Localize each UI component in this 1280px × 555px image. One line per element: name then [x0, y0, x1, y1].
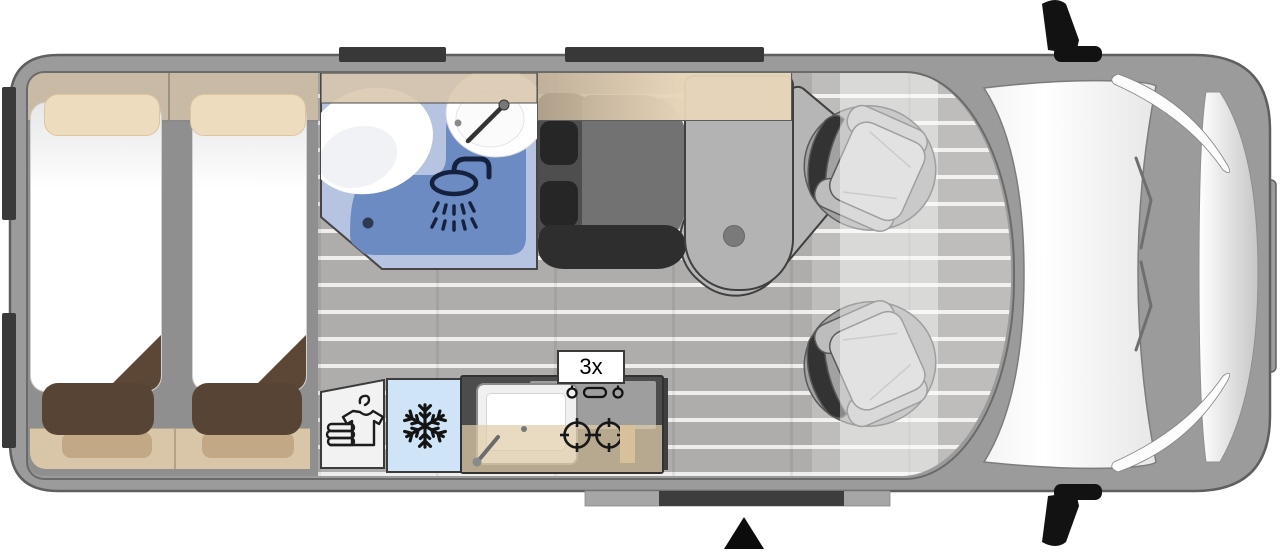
shelf-divider [168, 71, 170, 120]
entrance-triangle-icon [724, 517, 764, 549]
bathroom-shelf [321, 73, 537, 103]
wardrobe [320, 379, 386, 469]
foot-cushion-left [42, 383, 154, 435]
side-mirror-bottom-icon [1042, 484, 1102, 546]
roof-opening-highlight [840, 71, 938, 476]
burner-count-label: 3x [557, 350, 625, 384]
table-pivot [723, 225, 745, 247]
headrest [540, 121, 578, 165]
faucet-icon [473, 426, 528, 467]
window-marker-left [339, 47, 446, 62]
burner-count-text: 3x [579, 354, 602, 380]
side-mirror-top-icon [1042, 0, 1102, 62]
twin-bed-left [30, 102, 162, 392]
drain-icon [363, 218, 374, 229]
kitchen-end-trim [620, 425, 635, 463]
sliding-door [659, 491, 844, 506]
headrest [540, 181, 578, 227]
dinette-overhead-shelf [537, 71, 792, 121]
snowflake-icon [396, 397, 454, 455]
rear-door-marker-bottom [2, 313, 16, 448]
bed-pillow-left [44, 94, 160, 136]
bed-pillow-right [190, 94, 306, 136]
twin-bed-right [192, 102, 307, 392]
foot-cushion-right [192, 383, 302, 435]
campervan-floorplan: 3x [0, 0, 1280, 555]
bathroom [318, 71, 540, 271]
seat-base-shadow [538, 225, 686, 269]
window-marker-right [565, 47, 764, 62]
fridge [386, 378, 464, 473]
bench-divider [174, 429, 176, 469]
rear-door-marker-top [2, 87, 16, 220]
bench-tab [202, 432, 294, 458]
burner-icon [560, 418, 594, 452]
living-area-floor: 3x [318, 71, 1011, 476]
stove-knobs-icon [568, 386, 623, 398]
bench-tab [62, 432, 152, 458]
